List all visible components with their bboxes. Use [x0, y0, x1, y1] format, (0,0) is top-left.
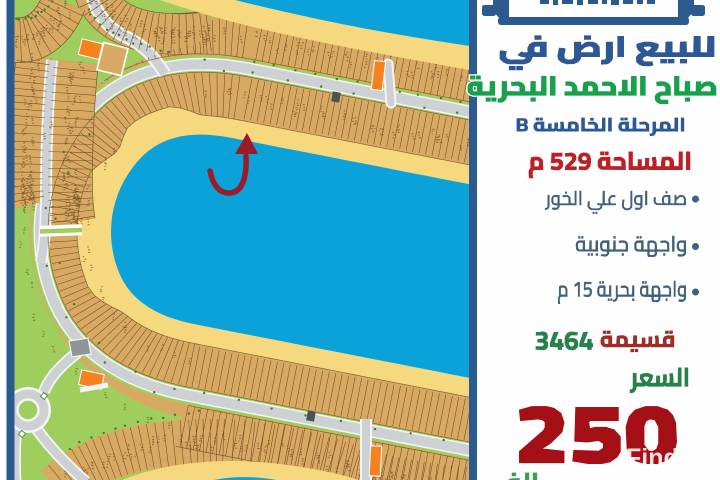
svg-text:Find: Find	[626, 444, 679, 472]
